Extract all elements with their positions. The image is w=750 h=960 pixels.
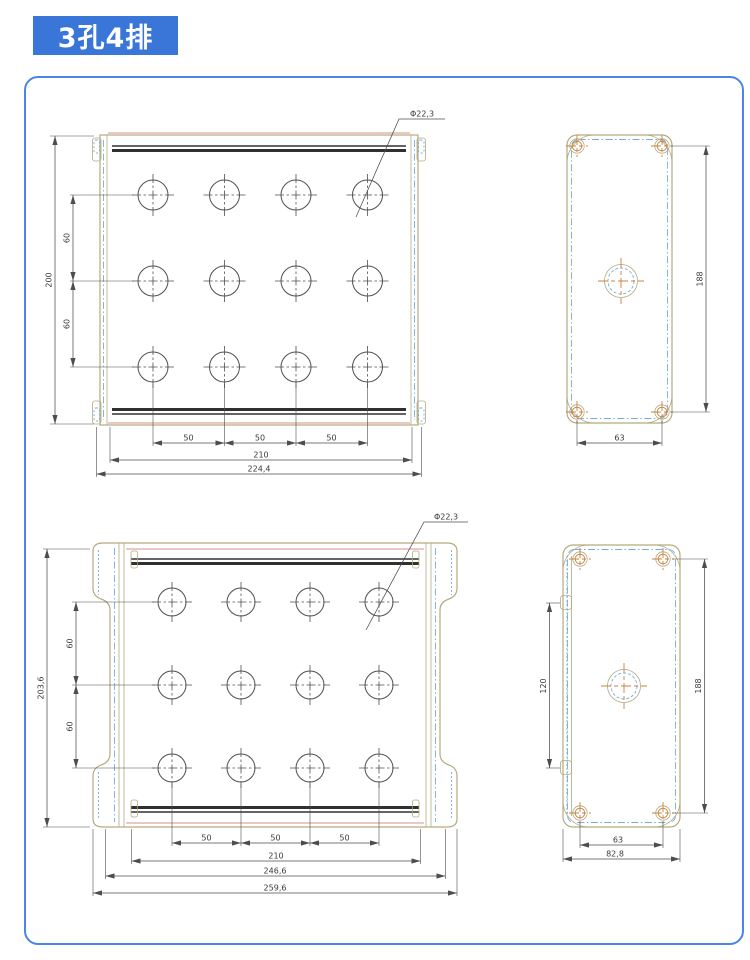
cable-entry-hole xyxy=(598,258,644,304)
dim-flange-width: 246,6 xyxy=(264,867,287,876)
dim-overall-height: 203,6 xyxy=(37,677,46,700)
dim-col-pitch-3: 50 xyxy=(326,434,336,443)
dim-row-pitch-2: 60 xyxy=(63,319,72,329)
product-dimension-page: { "badge": { "label": "3孔4排" }, "colors"… xyxy=(0,0,750,960)
dim-hole-diameter: Φ22,3 xyxy=(434,513,458,522)
dim-screw-pitch-v: 188 xyxy=(696,271,705,286)
dim-row-pitch-2: 60 xyxy=(66,721,75,731)
dim-col-pitch-1: 50 xyxy=(183,434,193,443)
rail-clamp-tabs xyxy=(131,551,419,817)
dim-overall-width: 259,6 xyxy=(264,884,287,893)
hinge-knuckles xyxy=(561,596,572,775)
dim-rail-width: 210 xyxy=(268,852,283,861)
button-hole-grid xyxy=(132,174,389,388)
dim-row-pitch-1: 60 xyxy=(63,233,72,243)
dim-col-pitch-2: 50 xyxy=(270,834,280,843)
button-hole-grid xyxy=(152,582,399,788)
dim-overall-width: 224,4 xyxy=(248,465,271,474)
dim-hole-diameter: Φ22,3 xyxy=(410,110,434,119)
cable-entry-hole xyxy=(601,663,647,709)
dim-screw-pitch-h: 63 xyxy=(614,434,624,443)
dim-col-pitch-2: 50 xyxy=(255,434,265,443)
corner-screws xyxy=(566,135,673,423)
technical-drawing: Φ22,3 200 60 60 50 50 50 210 224,4 xyxy=(0,0,750,960)
top-side-view: 188 63 xyxy=(566,135,710,446)
bottom-side-view: 120 188 63 82,8 xyxy=(539,545,708,862)
bottom-front-view: Φ22,3 203,6 60 60 50 50 50 210 246,6 xyxy=(37,513,469,897)
dim-screw-pitch-v: 188 xyxy=(694,678,703,693)
dim-col-pitch-1: 50 xyxy=(201,834,211,843)
dim-overall-height: 200 xyxy=(45,272,54,287)
dim-hinge-pitch: 120 xyxy=(539,678,548,693)
dim-screw-pitch-h: 63 xyxy=(613,836,623,845)
top-front-view: Φ22,3 200 60 60 50 50 50 210 224,4 xyxy=(45,110,446,478)
dim-row-pitch-1: 60 xyxy=(66,638,75,648)
dim-col-pitch-3: 50 xyxy=(339,834,349,843)
dim-overall-depth: 82,8 xyxy=(606,850,624,859)
dim-rail-width: 210 xyxy=(253,451,268,460)
